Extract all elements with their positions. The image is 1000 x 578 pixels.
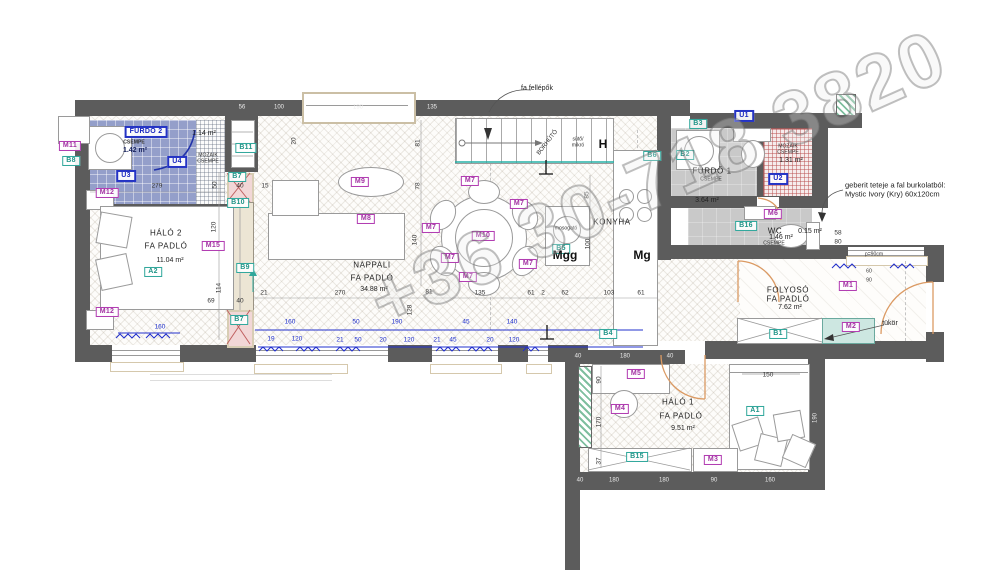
- label-56: 56: [239, 105, 246, 112]
- label-40: 40: [577, 478, 584, 485]
- label-120: 120: [509, 336, 520, 343]
- label-m7: M7: [519, 259, 537, 269]
- label-40: 40: [236, 182, 243, 189]
- label-a1: A1: [746, 406, 764, 416]
- label-120: 120: [292, 335, 303, 342]
- label-csempe: CSEMPE: [763, 241, 785, 247]
- label-78: 78: [414, 182, 421, 189]
- label-40: 40: [575, 354, 582, 361]
- label-u1: U1: [734, 110, 754, 122]
- label-b15: B15: [626, 452, 648, 462]
- label-b1: B1: [769, 329, 787, 339]
- label-160: 160: [285, 318, 296, 325]
- label-m4: M4: [611, 404, 629, 414]
- label-csempe: CSEMPE: [197, 159, 219, 165]
- label-m3: M3: [704, 455, 722, 465]
- label-1-42-m-: 1.42 m²: [123, 147, 147, 155]
- label-mikr-: mikró: [572, 143, 584, 149]
- label-f-rd-1: FÜRDŐ 1: [692, 166, 731, 175]
- label-mystic-ivory-kry-60x120cm: Mystic Ivory (Kry) 60x120cm: [845, 191, 940, 200]
- stair-walkline: [459, 140, 536, 146]
- label-61: 61: [527, 289, 534, 296]
- label-fa-padl-: FA PADLÓ: [660, 411, 703, 420]
- label-mosogat-: mosogató: [555, 226, 577, 232]
- label-20: 20: [379, 336, 386, 343]
- label-m5: M5: [627, 369, 645, 379]
- label-fa-padl-: FA PADLÓ: [767, 294, 810, 303]
- label-160: 160: [155, 323, 166, 330]
- label-m15: M15: [202, 241, 225, 251]
- label-81: 81: [425, 288, 432, 295]
- label-u2: U2: [768, 173, 788, 185]
- label-b16: B16: [735, 221, 757, 231]
- label-85: 85: [583, 191, 590, 198]
- label-p-90cm: p=90cm: [865, 252, 883, 258]
- label-15: 15: [261, 182, 268, 189]
- label-m10: M10: [472, 231, 495, 241]
- label-m6: M6: [764, 209, 782, 219]
- label-fa-fell-p-k: fa fellépők: [521, 85, 553, 93]
- label-m8: M8: [357, 214, 375, 224]
- label-konyha: KONYHA: [593, 217, 630, 226]
- label-1-14-m-: 1.14 m²: [192, 130, 216, 138]
- label-h-l-2: HÁLÓ 2: [150, 228, 182, 237]
- label-f-rd-2: FÜRDŐ 2: [125, 126, 168, 138]
- label-20: 20: [486, 336, 493, 343]
- label-7-62-m-: 7.62 m²: [778, 304, 802, 312]
- label-90: 90: [866, 278, 872, 284]
- label-120: 120: [404, 336, 415, 343]
- label-100: 100: [584, 239, 591, 250]
- label-81: 81: [414, 139, 421, 146]
- label-190: 190: [813, 413, 820, 423]
- label-h: H: [599, 138, 608, 152]
- label-u4: U4: [167, 156, 187, 168]
- label-180: 180: [659, 478, 669, 485]
- label-270: 270: [335, 289, 346, 296]
- label-50: 50: [354, 336, 361, 343]
- label-m7: M7: [422, 223, 440, 233]
- label-m9: M9: [351, 177, 369, 187]
- label-37: 37: [595, 457, 602, 464]
- mirror-arrowhead: [824, 334, 834, 341]
- label-b9: B9: [236, 263, 254, 273]
- label-m7: M7: [441, 253, 459, 263]
- label-fa-padl-: FA PADLÓ: [145, 241, 188, 250]
- label-135: 135: [475, 289, 486, 296]
- label-279: 279: [152, 182, 163, 189]
- label-45: 45: [449, 336, 456, 343]
- label-csempe: CSEMPE: [123, 140, 145, 146]
- label-fa-padl-: FA PADLÓ: [351, 273, 394, 282]
- label-0-15-m-: 0.15 m²: [798, 228, 822, 236]
- label-m1: M1: [839, 281, 857, 291]
- label-34-88-m-: 34.88 m²: [360, 286, 388, 294]
- label-60: 60: [866, 269, 872, 275]
- label-40: 40: [236, 297, 243, 304]
- label-u3: U3: [116, 170, 136, 182]
- label-150: 150: [763, 371, 774, 378]
- label-b6: B6: [643, 151, 661, 161]
- label-mg: Mg: [633, 249, 650, 263]
- label-b7: B7: [230, 315, 248, 325]
- label-20: 20: [290, 137, 297, 144]
- label-114: 114: [215, 283, 222, 293]
- floor-plan: M11M12M12M15M9M8M7M7M7M7M7M7M10M6M1M2M5M…: [0, 0, 1000, 578]
- label-21: 21: [433, 336, 440, 343]
- label-40: 40: [667, 354, 674, 361]
- label-b2: B2: [676, 150, 694, 160]
- label-90: 90: [595, 376, 602, 383]
- stairs-note-arrowhead: [484, 128, 492, 140]
- label-58: 58: [834, 229, 841, 236]
- label-m7: M7: [461, 176, 479, 186]
- label-m12: M12: [96, 307, 119, 317]
- label-2: 2: [541, 289, 545, 296]
- label-mgg: Mgg: [553, 249, 578, 263]
- label-160: 160: [765, 478, 775, 485]
- label-180: 180: [609, 478, 619, 485]
- label-190: 190: [353, 105, 363, 112]
- label-120: 120: [210, 222, 217, 233]
- label-140: 140: [411, 235, 418, 246]
- label-m7: M7: [459, 272, 477, 282]
- label-50: 50: [352, 318, 359, 325]
- label-11-04-m-: 11.04 m²: [156, 257, 183, 265]
- label-m12: M12: [96, 188, 119, 198]
- label-m2: M2: [842, 322, 860, 332]
- label-b10: B10: [227, 198, 249, 208]
- label-21: 21: [336, 336, 343, 343]
- label-61: 61: [637, 289, 644, 296]
- label-b4: B4: [599, 329, 617, 339]
- label-190: 190: [392, 318, 403, 325]
- label-1-31-m-: 1.31 m²: [779, 157, 803, 165]
- label-h-l-1: HÁLÓ 1: [662, 397, 694, 406]
- label-s-t-: sütő/: [572, 137, 583, 143]
- label-45: 45: [462, 318, 469, 325]
- label-nappali: NAPPALI: [353, 260, 390, 269]
- label-128: 128: [406, 305, 413, 316]
- label-b3: B3: [689, 119, 707, 129]
- label-mozaik: MOZAIK: [198, 153, 218, 159]
- label-140: 140: [507, 318, 518, 325]
- label-a2: A2: [144, 267, 162, 277]
- label-50: 50: [211, 181, 218, 188]
- label-mozaik: MOZAIK: [778, 144, 798, 150]
- label-69: 69: [207, 297, 214, 304]
- label-80: 80: [834, 238, 841, 245]
- label-folyos-: FOLYOSÓ: [767, 285, 809, 294]
- label-62: 62: [561, 289, 568, 296]
- label-19: 19: [267, 335, 274, 342]
- label-b8: B8: [62, 156, 80, 166]
- label-100: 100: [274, 105, 284, 112]
- label-170: 170: [595, 417, 602, 428]
- label-t-k-r: tükör: [882, 320, 898, 328]
- label-90: 90: [711, 478, 718, 485]
- label-103: 103: [604, 289, 615, 296]
- label-9-51-m-: 9.51 m²: [671, 425, 695, 433]
- label-135: 135: [427, 105, 437, 112]
- geberit-arrowhead: [818, 212, 826, 222]
- label-csempe: CSEMPE: [777, 150, 799, 156]
- label-3-64-m-: 3.64 m²: [695, 197, 719, 205]
- label-m7: M7: [510, 199, 528, 209]
- label-b11: B11: [235, 143, 256, 153]
- label-180: 180: [620, 354, 630, 361]
- label-b7: B7: [228, 172, 246, 182]
- label-21: 21: [260, 289, 267, 296]
- label-m11: M11: [59, 141, 81, 151]
- label-csempe: CSEMPE: [700, 177, 722, 183]
